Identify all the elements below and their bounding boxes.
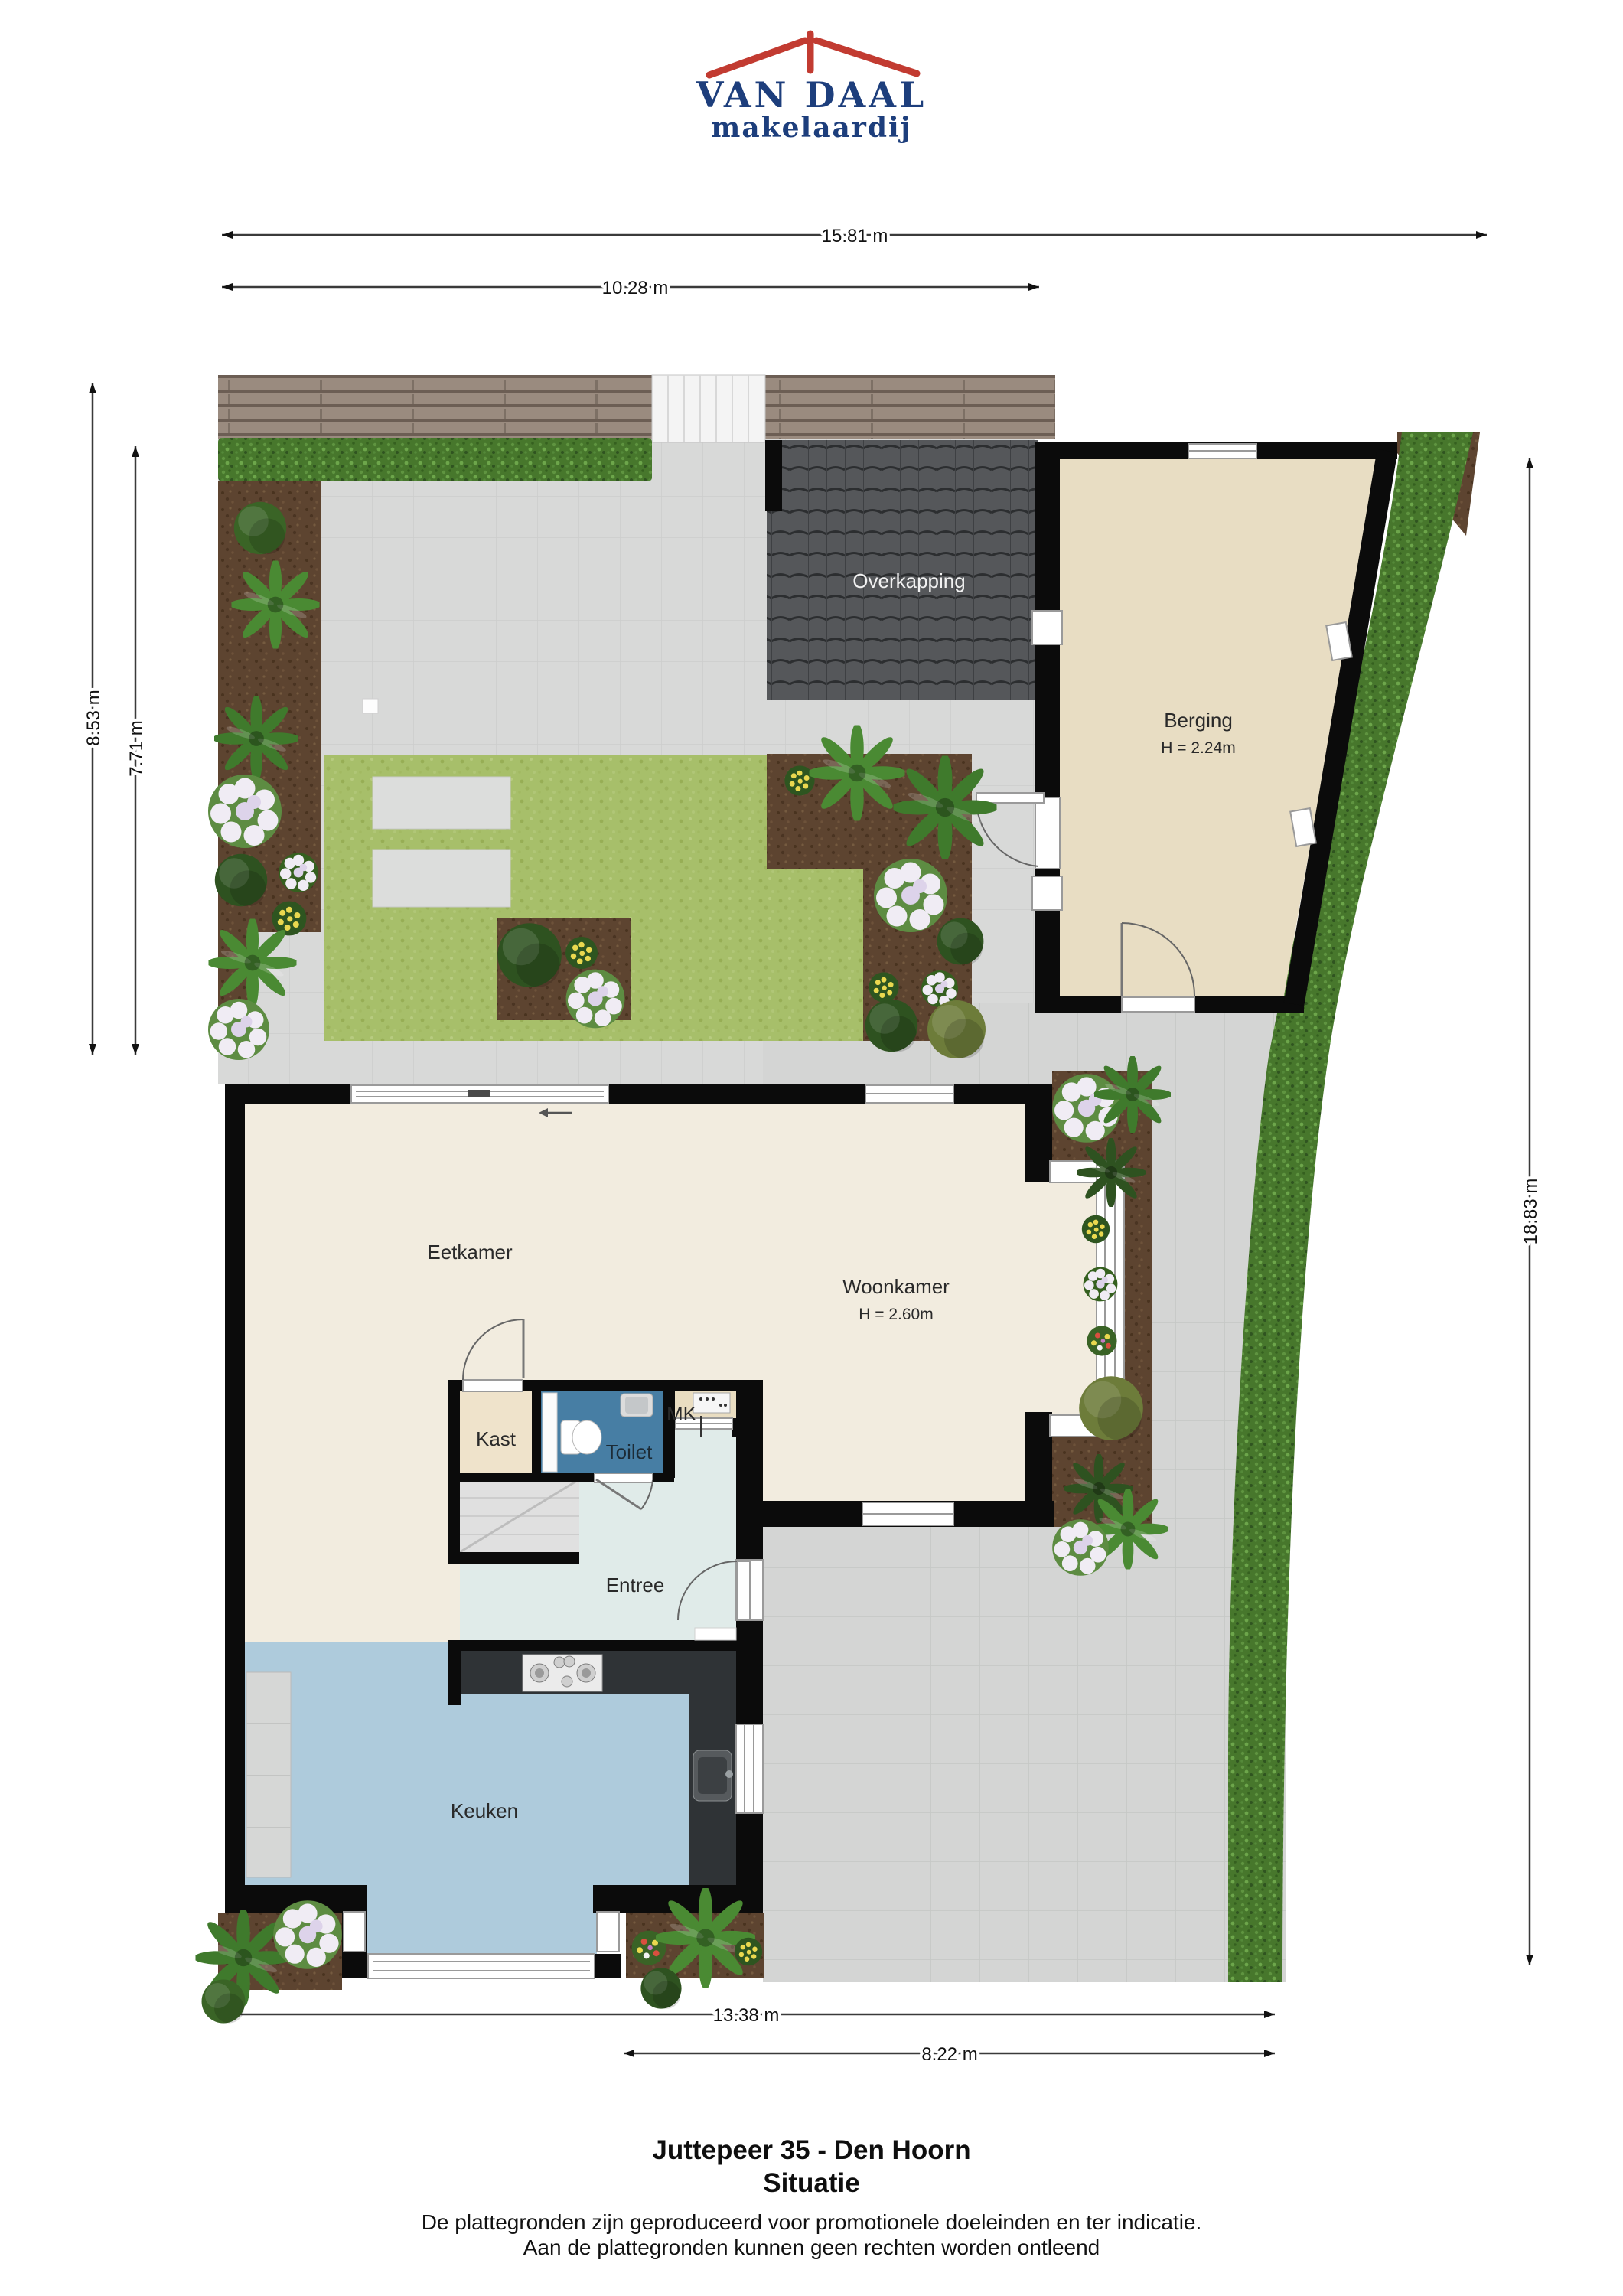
dimension-label-bottom-right: 8.22 m	[921, 2044, 977, 2065]
plant-palm	[891, 754, 999, 861]
lawn-paving-slab	[373, 777, 510, 829]
room-label-kast: Kast	[476, 1427, 517, 1450]
plant-flowers-white	[1052, 1519, 1109, 1576]
room-label-entree: Entree	[606, 1574, 665, 1596]
room-label-toilet: Toilet	[606, 1440, 653, 1463]
plant-flowers-yellow	[272, 902, 307, 936]
plant-palm	[230, 559, 321, 651]
plan-title: Juttepeer 35 - Den Hoorn	[0, 2135, 1623, 2166]
dimension-label-left-outer: 8.53 m	[83, 690, 104, 745]
garden-object	[363, 699, 378, 713]
sink-icon	[693, 1750, 733, 1801]
plant-bush	[865, 1000, 917, 1052]
dimension-label-right: 18.83 m	[1520, 1179, 1541, 1245]
plant-palm	[1093, 1055, 1172, 1134]
room-living-floor	[245, 1501, 460, 1642]
plant-flowers-white	[208, 999, 269, 1060]
plant-flowers-yellow	[869, 972, 898, 1002]
plant-bush	[234, 502, 286, 554]
disclaimer-line-1: De plattegronden zijn geproduceerd voor …	[0, 2210, 1623, 2235]
room-kitchen-floor	[367, 1890, 597, 1954]
dimension-label-top-left: 10.28 m	[602, 278, 669, 298]
hedge-top-strip	[218, 438, 652, 481]
window	[344, 1912, 365, 1952]
plant-palm	[1075, 1137, 1147, 1208]
window	[597, 1912, 619, 1952]
room-height-berging: H = 2.24m	[1161, 739, 1235, 757]
plant-palm	[213, 695, 300, 782]
plant-flowers-white	[1084, 1267, 1118, 1302]
window	[736, 1724, 763, 1813]
dimension-label-left-inner: 7.71 m	[126, 720, 147, 776]
room-label-mk: MK	[666, 1402, 697, 1425]
wall	[1035, 442, 1060, 1013]
plant-flowers-white	[208, 775, 282, 848]
plant-bush	[497, 923, 562, 987]
plant-bush	[927, 1000, 986, 1058]
plant-bush	[640, 1968, 681, 2008]
plant-flowers-yellow	[735, 1938, 762, 1965]
wood-deck	[218, 375, 1055, 439]
room-label-eetkamer: Eetkamer	[427, 1241, 513, 1264]
dimension-label-bottom-total: 13.38 m	[713, 2005, 780, 2026]
bay-window-floor	[1025, 1182, 1097, 1415]
bay-bottom-window	[368, 1954, 595, 1978]
plant-palm	[807, 723, 907, 823]
room-entree-floor	[670, 1429, 736, 1478]
window	[862, 1502, 953, 1525]
room-label-woonkamer: Woonkamer	[842, 1275, 950, 1298]
doormat	[695, 1628, 736, 1640]
plant-bush	[215, 854, 267, 906]
window	[865, 1085, 953, 1103]
lawn-paving-slab	[373, 850, 510, 907]
room-label-berging: Berging	[1164, 709, 1233, 732]
wall	[765, 440, 782, 511]
deck-stairs	[652, 375, 765, 442]
plant-bush	[202, 1980, 246, 2024]
room-label-keuken: Keuken	[451, 1799, 518, 1822]
plant-flowers-yellow	[1082, 1215, 1110, 1243]
plant-bush	[937, 918, 984, 965]
disclaimer-line-2: Aan de plattegronden kunnen geen rechten…	[0, 2236, 1623, 2260]
plant-flowers-mixed	[1087, 1326, 1116, 1355]
plant-bush	[1079, 1376, 1143, 1440]
stove-icon	[523, 1655, 602, 1691]
room-label-overkapping: Overkapping	[852, 569, 965, 592]
washbasin-icon	[621, 1394, 653, 1417]
plant-flowers-white	[273, 1900, 342, 1969]
staircase	[460, 1479, 579, 1552]
plan-subtitle: Situatie	[0, 2168, 1623, 2199]
site-plan: 15.81 m 10.28 m 8.53 m 7.71 m 18.83 m 13…	[0, 0, 1623, 2296]
dimension-label-top-total: 15.81 m	[822, 226, 888, 246]
plant-flowers-white	[874, 859, 947, 932]
floorplan-page: VAN DAAL makelaardij	[0, 0, 1623, 2296]
plant-flowers-white	[566, 970, 625, 1029]
plant-flowers-white	[279, 853, 318, 892]
plant-flowers-yellow	[565, 937, 598, 969]
plant-palm	[207, 917, 298, 1009]
room-height-woonkamer: H = 2.60m	[859, 1306, 933, 1323]
